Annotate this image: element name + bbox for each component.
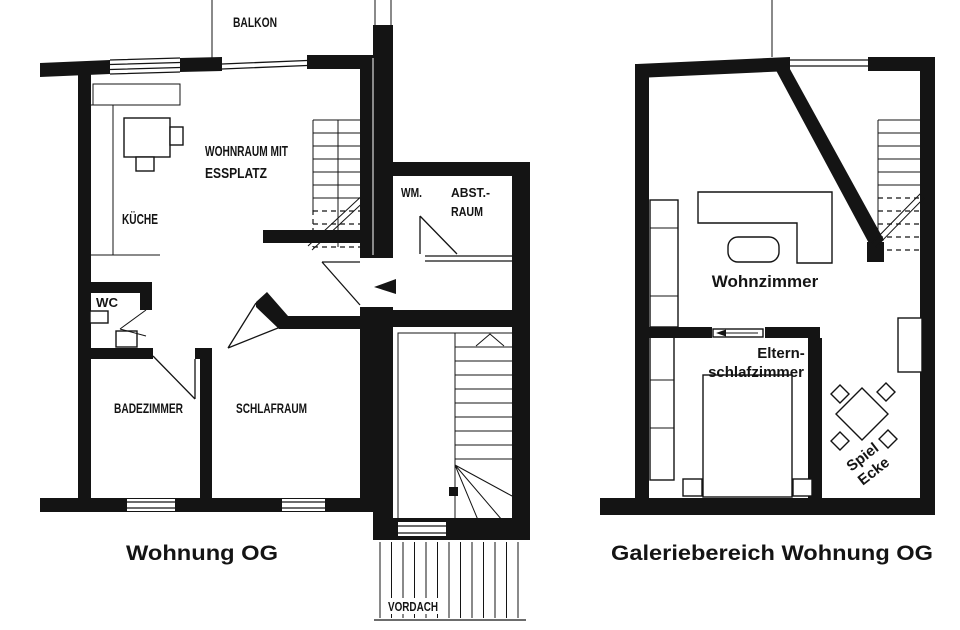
wall-hall-angled [256,292,360,329]
vordach-canopy: VORDACH [374,542,526,620]
room-label-schlafraum: SCHLAFRAUM [236,400,307,416]
room-label-vordach: VORDACH [388,599,438,614]
tower-wall-right [512,162,530,540]
wall-bath-bed-partition [200,355,212,505]
kitchen-window [110,58,180,74]
bathroom-door-swing [153,356,195,399]
landing-wall [393,310,530,327]
bedroom-wall-vertical [808,338,822,498]
wall-top-mid [180,57,222,72]
room-label-badezimmer: BADEZIMMER [114,400,183,416]
play-chair-1 [831,385,849,403]
floor-plan-svg: BALKON [0,0,960,630]
wc-toilet [116,331,137,347]
entrance-arrow-icon [374,279,396,294]
wall-bottom [600,498,935,515]
dining-chair-right [170,127,183,145]
wall-left [635,64,649,498]
tower-wall-left-lower [360,307,393,512]
wall-wc-top [88,282,152,293]
play-chair-3 [831,432,849,450]
room-label-kueche: KÜCHE [122,211,158,228]
room-label-wohnraum-2: ESSPLATZ [205,165,267,182]
dining-table [124,118,170,157]
dining-chair-bottom [136,157,154,171]
stair-direction-arrow [476,334,504,346]
sideboard [898,318,922,372]
tower-wall-top [373,25,393,55]
room-label-balkon: BALKON [233,14,277,30]
abstraum-threshold [425,256,512,261]
kitchen-counter-side [91,105,113,255]
wall-right [920,57,935,515]
play-corner: Spiel Ecke [831,383,897,489]
wc-sink [90,311,108,323]
abstraum-door-swing [420,216,457,254]
window-gap-bed [282,499,325,511]
entrance-window-gap [398,522,446,536]
room-label-eltern-1: Eltern- [757,345,805,362]
middle-stair-tower: WM. ABST.- RAUM VORDACH [322,0,530,620]
floor-plan-page: BALKON [0,0,960,630]
room-label-wohnraum-1: WOHNRAUM MIT [205,143,288,160]
room-label-eltern-2: schlafzimmer [708,364,804,381]
window-gap-bath [127,499,175,511]
stair-treads [455,333,512,459]
right-plan: Spiel Ecke Wohnzimmer Eltern- schlafzimm… [600,0,935,565]
wall-top-left [40,60,110,77]
tower-wall-bottom [373,518,527,540]
room-label-wc: WC [96,295,119,310]
right-plan-caption: Galeriebereich Wohnung OG [611,542,933,565]
stair-treads [878,120,920,185]
bedroom-wall-right [765,327,820,338]
entrance-door-swing [322,262,360,305]
wall-bath-top [83,348,153,359]
kitchen-counter-top [93,84,180,105]
stair-well [398,333,455,523]
nightstand-left [683,479,702,496]
nightstand-right [793,479,812,496]
tower-wall-continues-up [375,0,391,25]
left-plan: BALKON [40,0,372,565]
stair-winders [455,465,512,520]
room-label-abstraum-1: ABST.- [451,185,490,200]
bed [703,375,792,497]
room-label-wm: WM. [401,185,422,200]
wall-diagonal-pier [867,242,884,262]
bedroom-wall-left [649,327,712,338]
shelf-unit-upper [650,200,678,327]
top-window [790,60,868,66]
room-label-wohnzimmer: Wohnzimmer [712,272,819,291]
room-label-abstraum-2: RAUM [451,204,483,219]
play-chair-4 [879,430,897,448]
common-stair [398,333,512,523]
wall-under-stair [263,230,360,243]
wall-top-left [637,57,790,78]
abstraum-wall-top [393,162,530,176]
gallery-stair [871,120,925,250]
balcony-door-window [222,61,307,70]
coffee-table [728,237,779,262]
left-plan-caption: Wohnung OG [126,542,278,565]
tower-wall-left-upper [360,55,393,258]
wardrobe-lower [650,337,674,480]
wall-top-right [307,55,362,69]
play-chair-2 [877,383,895,401]
stair-newel [449,487,458,496]
wall-wc-right [140,293,152,310]
